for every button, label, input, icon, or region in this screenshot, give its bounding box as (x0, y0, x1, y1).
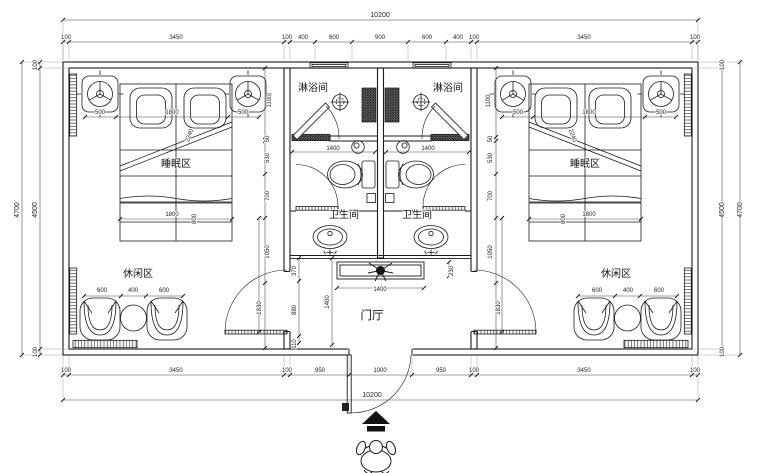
dim-label: 100 (282, 368, 293, 374)
dim-label: 4500 (32, 202, 39, 218)
dim-label: 500 (656, 110, 667, 116)
dim-label: 1400 (325, 295, 331, 309)
dim-label: 2240 (567, 128, 577, 143)
dim-label: 900 (375, 35, 386, 41)
entry-arrow-icon (362, 411, 390, 432)
dim-label: 10200 (362, 392, 382, 399)
dim-label: 880 (292, 304, 298, 315)
floor-plan-drawing: 10200 10200 100 3450 100 400 600 900 600… (0, 0, 760, 473)
dim-label: 1800 (165, 212, 179, 218)
dim-label: 230 (449, 265, 455, 276)
dim-label: 100 (690, 368, 701, 374)
toilet-door (296, 165, 338, 211)
dim-label: 100 (33, 59, 39, 70)
sink (313, 226, 347, 256)
dim-label: 3450 (169, 35, 183, 41)
window (310, 63, 348, 68)
floor-plan-canvas: 10200 10200 100 3450 100 400 600 900 600… (0, 0, 760, 473)
room-label-leisure-left: 休闲区 (123, 267, 153, 280)
dim-label: 3450 (577, 368, 591, 374)
dim-label: 600 (654, 288, 665, 294)
sill-heater-bottom (73, 340, 137, 347)
dim-label: 4700 (737, 202, 744, 218)
dim-label: 50 (265, 135, 271, 142)
dim-label: 500 (95, 110, 106, 116)
entrance-opening (348, 348, 413, 356)
dim-label: 700 (265, 190, 271, 201)
dim-label: 400 (453, 35, 464, 41)
dim-label: 600 (159, 288, 170, 294)
room-label-toilet-right: 卫生间 (402, 208, 432, 221)
dim-label: 100 (282, 35, 293, 41)
dim-label: 100 (469, 35, 480, 41)
dim-label: 600 (329, 35, 340, 41)
dim-label: 4700 (14, 202, 21, 218)
dim-label: 500 (513, 110, 524, 116)
entrance-door (342, 355, 411, 413)
shower-wall (330, 136, 378, 141)
dim-label: 400 (623, 288, 634, 294)
toilet (328, 161, 376, 188)
dim-label: 530 (265, 152, 271, 163)
core-center-wall (378, 68, 384, 258)
dim-label: 950 (315, 368, 326, 374)
dim-label: 100 (720, 346, 726, 357)
dim-label: 950 (436, 368, 447, 374)
dim-label: 3450 (169, 368, 183, 374)
room-label-toilet-left: 卫生间 (329, 208, 359, 221)
dim-label: 1400 (326, 146, 340, 152)
room-label-leisure-right: 休闲区 (601, 267, 631, 280)
dim-label: 100 (33, 346, 39, 357)
shower-column (362, 88, 376, 122)
dim-label: 1400 (421, 146, 435, 152)
dim-label: 2240 (185, 128, 195, 143)
dim-label: 1400 (373, 287, 387, 293)
dim-label: 1800 (165, 110, 179, 116)
floor-drain-icon (331, 93, 350, 112)
dim-label: 600 (97, 288, 108, 294)
dim-label: 50 (488, 135, 494, 142)
wall-heater-upper (70, 74, 77, 136)
dim-label: 400 (128, 288, 139, 294)
tub-chair (80, 298, 120, 340)
ceiling-fan-icon (368, 263, 393, 281)
dim-label: 1800 (582, 212, 596, 218)
flush-panel (367, 194, 376, 203)
dim-label: 800 (561, 213, 567, 224)
room-label-sleep-right: 睡眠区 (570, 157, 600, 170)
dim-label: 1100 (267, 94, 273, 108)
dim-label: 800 (192, 213, 198, 224)
paper-holder-icon (352, 141, 365, 154)
round-table (121, 305, 147, 331)
room-label-shower-left: 淋浴间 (298, 81, 328, 94)
left-room-door-opening (283, 271, 291, 332)
dim-label: 700 (488, 190, 494, 201)
room-door (225, 270, 287, 334)
dim-label: 600 (422, 35, 433, 41)
dim-label: 1830 (257, 301, 263, 315)
dim-label: 100 (61, 368, 72, 374)
person-icon (355, 440, 398, 473)
tub-chair (147, 298, 187, 340)
dim-label: 100 (469, 368, 480, 374)
dim-label: 400 (298, 35, 309, 41)
dim-label: 1800 (582, 110, 596, 116)
dim-label: 100 (720, 59, 726, 70)
dim-label: 1100 (486, 94, 492, 108)
dim-label: 370 (292, 265, 298, 276)
dim-label: 1050 (488, 245, 494, 259)
dim-label: 500 (238, 110, 249, 116)
dim-label: 110 (292, 339, 298, 349)
dim-label: 3450 (577, 35, 591, 41)
right-room-door-opening (470, 271, 478, 332)
wall-heater-lower (70, 268, 77, 334)
dim-label: 600 (592, 288, 603, 294)
room-label-hall: 门厅 (361, 308, 384, 322)
dim-label: 10200 (370, 12, 390, 19)
room-label-sleep-left: 睡眠区 (161, 157, 191, 170)
dim-label: 530 (488, 152, 494, 163)
dim-label: 100 (690, 35, 701, 41)
dim-label: 1000 (373, 368, 387, 374)
dim-label: 4500 (719, 202, 726, 218)
dim-label: 1050 (265, 245, 271, 259)
dim-label: 100 (61, 35, 72, 41)
room-label-shower-right: 淋浴间 (433, 81, 463, 94)
inner-wall (69, 68, 692, 349)
dim-label: 1830 (496, 301, 502, 315)
